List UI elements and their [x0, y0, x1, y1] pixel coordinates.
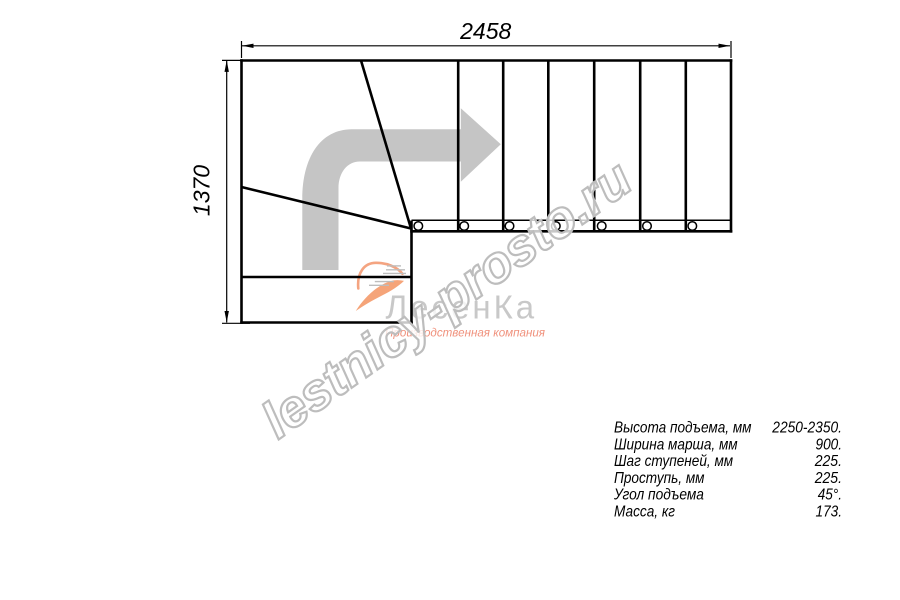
svg-text:Проступь, мм: Проступь, мм: [614, 470, 705, 487]
svg-text:2458: 2458: [459, 18, 511, 44]
svg-text:45°.: 45°.: [818, 487, 842, 504]
svg-text:Угол подъема: Угол подъема: [613, 487, 704, 504]
svg-text:2250-2350.: 2250-2350.: [771, 420, 842, 437]
svg-text:Масса, кг: Масса, кг: [614, 504, 675, 521]
svg-text:225.: 225.: [814, 453, 842, 470]
svg-text:225.: 225.: [814, 470, 842, 487]
svg-text:Шаг ступеней, мм: Шаг ступеней, мм: [614, 453, 733, 470]
svg-text:173.: 173.: [816, 504, 843, 521]
svg-text:Ширина марша, мм: Ширина марша, мм: [614, 436, 738, 453]
svg-text:900.: 900.: [816, 436, 843, 453]
svg-text:1370: 1370: [189, 165, 215, 216]
svg-text:Высота подъема, мм: Высота подъема, мм: [614, 420, 752, 437]
